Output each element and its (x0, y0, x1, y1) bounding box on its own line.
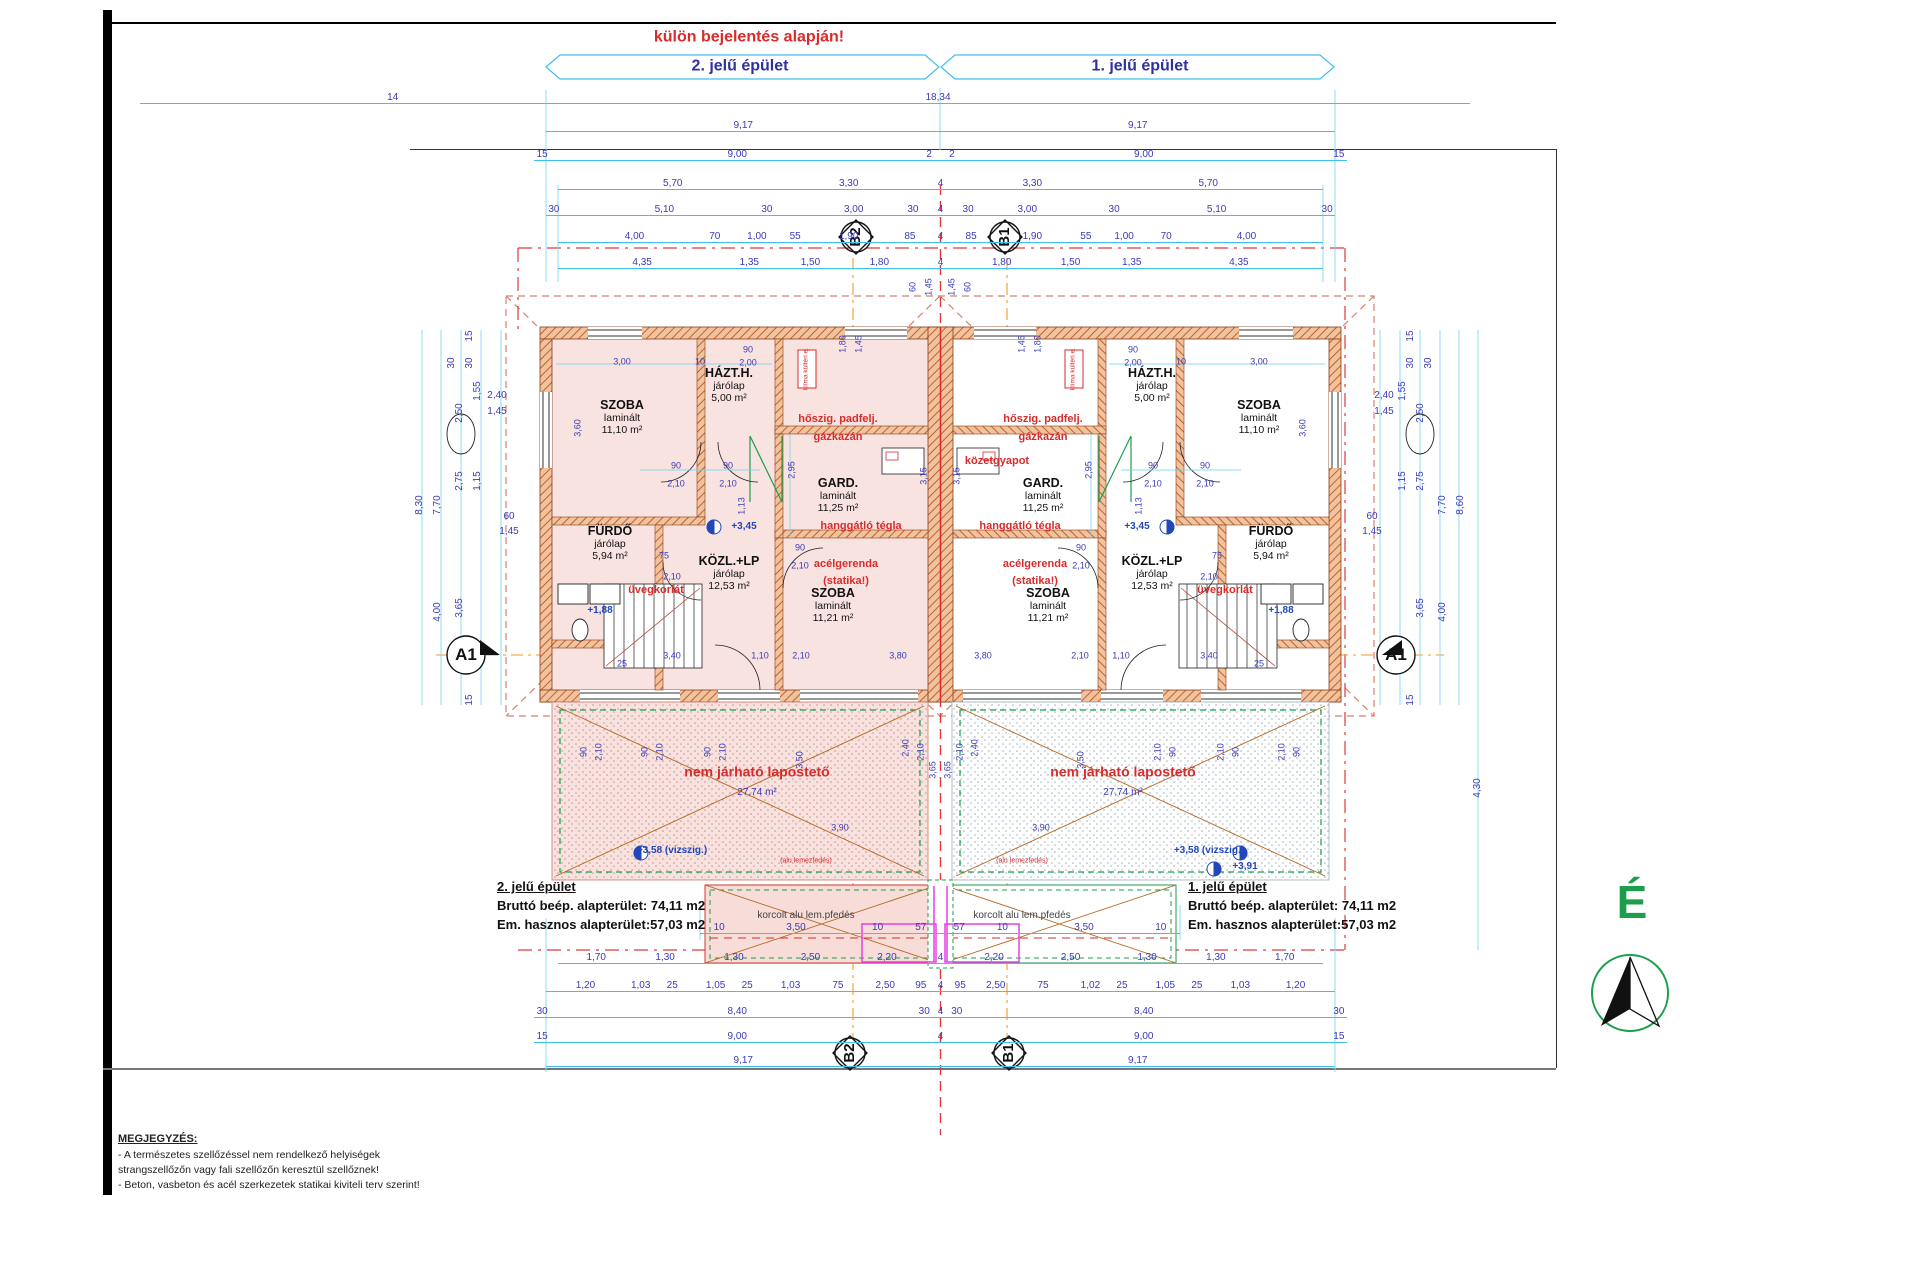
dim-label: 1,03 (781, 981, 800, 992)
dimension-row-10: 308,40304308,4030 (534, 1017, 1347, 1018)
room-nm: SZOBA (1026, 586, 1070, 600)
room-nm: SZOBA (600, 398, 644, 412)
v-dim-label: 60 (1366, 512, 1377, 523)
interior-dim-label: 90 (1231, 747, 1240, 757)
interior-dim-label: 90 (640, 747, 649, 757)
room-label-8: GARD.laminált11,25 m² (1023, 476, 1064, 514)
interior-dim-label: 1,13 (1134, 497, 1143, 515)
interior-dim-label: 3,90 (1032, 823, 1050, 832)
dim-label: 1,35 (1122, 258, 1141, 269)
dim-label: 2 (926, 150, 932, 161)
room-ar: 11,21 m² (811, 612, 855, 624)
dim-label: 9,00 (1134, 150, 1153, 161)
interior-dim-label: 2,40 (901, 739, 910, 757)
dimension-row-0: 1418,34 (140, 103, 1470, 104)
interior-dim-label: 90 (1148, 461, 1158, 470)
room-label-2: GARD.laminált11,25 m² (818, 476, 859, 514)
dim-label: 1,80 (992, 258, 1011, 269)
room-fin: laminált (811, 600, 855, 612)
dim-label: 9,00 (1134, 1032, 1153, 1043)
room-nm: HÁZT.H. (1128, 366, 1176, 380)
level-label: +3,58 (vizszig.) (1174, 846, 1244, 857)
v-dim-label: 2,40 (487, 391, 506, 402)
interior-dim-label: 1,80 (838, 335, 847, 353)
level-label: +3,58 (vizszig.) (637, 846, 707, 857)
v-dim-label: 1,55 (473, 381, 484, 400)
room-label-0: SZOBAlaminált11,10 m² (600, 398, 644, 436)
room-fin: laminált (1023, 490, 1064, 502)
interior-dim-label: 75 (1212, 551, 1222, 560)
room-ar: 11,25 m² (818, 502, 859, 514)
room-ar: 11,25 m² (1023, 502, 1064, 514)
dimension-row-3: 5,703,3043,305,70 (558, 189, 1323, 190)
red-annotation: hőszig. padfelj. (1003, 414, 1082, 426)
dim-label: 2,50 (876, 981, 895, 992)
interior-dim-label: 10 (695, 357, 705, 366)
interior-dim-label: 90 (1076, 543, 1086, 552)
interior-dim-label: 25 (1254, 659, 1264, 668)
room-fin: laminált (600, 412, 644, 424)
interior-dim-label: 2,10 (1071, 651, 1089, 660)
level-label: +1,88 (1268, 606, 1293, 617)
interior-dim-label: 2,10 (916, 743, 925, 761)
interior-dim-label: 90 (1168, 747, 1177, 757)
interior-dim-label: 2,10 (594, 743, 603, 761)
red-annotation: hanggátló tégla (979, 521, 1060, 533)
v-dim-label: 1,45 (1362, 527, 1381, 538)
red-annotation: hőszig. padfelj. (798, 414, 877, 426)
room-nm: FÜRDŐ (1249, 524, 1293, 538)
dim-label: 75 (1038, 981, 1049, 992)
dim-label: 5,10 (655, 205, 674, 216)
dim-label: 70 (709, 232, 720, 243)
v-dim-label: 1,45 (499, 527, 518, 538)
dim-label: 3,00 (1018, 205, 1037, 216)
interior-dim-label: 2,10 (955, 743, 964, 761)
interior-dim-label: 2,10 (655, 743, 664, 761)
room-label-4: KÖZL.+LPjárólap12,53 m² (699, 554, 760, 592)
level-label: +3,45 (731, 522, 756, 533)
dimension-row-12: 9,179,17 (546, 1066, 1335, 1067)
dim-label: 2,50 (986, 981, 1005, 992)
dim-label: 1,02 (1081, 981, 1100, 992)
interior-dim-label: 3,60 (573, 419, 582, 437)
interior-dim-label: 3,15 (919, 467, 928, 485)
interior-dim-label: 3,60 (1298, 419, 1307, 437)
dim-label: 4,35 (632, 258, 651, 269)
interior-dim-label: 2,10 (1200, 572, 1218, 581)
dim-label: 10 (1155, 923, 1166, 934)
dim-label: 9,17 (734, 1056, 753, 1067)
dim-label: 55 (1080, 232, 1091, 243)
dim-label: 1,00 (1114, 232, 1133, 243)
v-dim-label: 1,15 (1398, 471, 1409, 490)
dim-label: 70 (1161, 232, 1172, 243)
red-annotation: üvegkorlát (1197, 585, 1253, 597)
room-ar: 5,94 m² (1249, 550, 1293, 562)
room-label-7: HÁZT.H.járólap5,00 m² (1128, 366, 1176, 404)
interior-dim-label: 90 (703, 747, 712, 757)
interior-dim-label: 3,00 (613, 357, 631, 366)
room-label-9: FÜRDŐjárólap5,94 m² (1249, 524, 1293, 562)
room-nm: FÜRDŐ (588, 524, 632, 538)
room-fin: járólap (1249, 538, 1293, 550)
interior-dim-label: 90 (671, 461, 681, 470)
interior-dim-label: 3,50 (1076, 751, 1085, 769)
dim-label: 4 (938, 953, 944, 964)
dim-label: 15 (537, 1032, 548, 1043)
dim-label: 3,50 (1074, 923, 1093, 934)
dim-label: 1,90 (839, 232, 858, 243)
dim-label: 2,20 (984, 953, 1003, 964)
dim-label: 1,03 (1231, 981, 1250, 992)
v-dim-label: 60 (503, 512, 514, 523)
v-dim-label: 2,75 (455, 471, 466, 490)
room-ar: 12,53 m² (699, 580, 760, 592)
interior-dim-label: 3,00 (1250, 357, 1268, 366)
dim-label: 30 (761, 205, 772, 216)
interior-dim-label: 90 (795, 543, 805, 552)
red-annotation: gázkazán (814, 432, 863, 444)
room-label-6: SZOBAlaminált11,10 m² (1237, 398, 1281, 436)
dim-label: 4 (938, 179, 944, 190)
dim-label: 95 (955, 981, 966, 992)
room-fin: laminált (1026, 600, 1070, 612)
interior-dim-label: 3,90 (831, 823, 849, 832)
interior-dim-label: 2,10 (1216, 743, 1225, 761)
dim-label: 1,30 (724, 953, 743, 964)
dim-label: 25 (667, 981, 678, 992)
interior-dim-label: 75 (659, 551, 669, 560)
dim-label: 57 (915, 923, 926, 934)
dimension-row-9: 1,201,03251,05251,03752,50954952,50751,0… (546, 991, 1335, 992)
dim-label: 4 (938, 1032, 944, 1043)
dim-label: 30 (907, 205, 918, 216)
v-dim-label: 2,50 (1416, 403, 1427, 422)
room-nm: HÁZT.H. (705, 366, 753, 380)
dim-label: 95 (915, 981, 926, 992)
interior-dim-label: 1,45 (924, 278, 933, 296)
dim-label: 3,00 (844, 205, 863, 216)
dim-label: 9,00 (728, 150, 747, 161)
level-label: +1,88 (587, 606, 612, 617)
dim-label: 2,50 (1061, 953, 1080, 964)
dim-label: 30 (1109, 205, 1120, 216)
v-dim-label: 1,45 (487, 407, 506, 418)
v-dim-label: 8,60 (1456, 495, 1467, 514)
interior-dim-label: 2,10 (663, 572, 681, 581)
v-dim-label: 15 (465, 694, 476, 705)
dim-label: 14 (387, 93, 398, 104)
interior-dim-label: 3,15 (952, 467, 961, 485)
interior-dim-label: 90 (1200, 461, 1210, 470)
interior-dim-label: 1,80 (1033, 335, 1042, 353)
v-dim-label: 30 (1424, 357, 1435, 368)
dimension-row-11: 159,0049,0015 (534, 1042, 1347, 1043)
interior-dim-label: 3,40 (663, 651, 681, 660)
dim-label: 1,05 (706, 981, 725, 992)
dimension-row-5: 4,00701,00551,90854851,90551,00704,00 (558, 242, 1323, 243)
dim-label: 25 (1191, 981, 1202, 992)
dim-label: 9,17 (734, 121, 753, 132)
dim-label: 15 (537, 150, 548, 161)
dim-label: 8,40 (728, 1007, 747, 1018)
floor-plan-page: { "title_note": "külön bejelentés alapjá… (0, 0, 1920, 1280)
room-ar: 5,00 m² (705, 392, 753, 404)
dim-label: 1,30 (1137, 953, 1156, 964)
v-dim-label: 4,00 (1438, 602, 1449, 621)
room-ar: 5,94 m² (588, 550, 632, 562)
dim-label: 2,20 (877, 953, 896, 964)
room-nm: KÖZL.+LP (699, 554, 760, 568)
interior-dim-label: 3,65 (928, 761, 937, 779)
interior-dim-label: 3,50 (795, 751, 804, 769)
dim-label: 1,30 (655, 953, 674, 964)
dim-label: 5,10 (1207, 205, 1226, 216)
room-label-5: SZOBAlaminált11,21 m² (811, 586, 855, 624)
interior-dim-label: 1,45 (947, 278, 956, 296)
v-dim-label: 2,50 (455, 403, 466, 422)
interior-dim-label: 1,13 (737, 497, 746, 515)
dim-label: 4 (938, 1007, 944, 1018)
dim-label: 1,35 (740, 258, 759, 269)
dim-label: 15 (1333, 1032, 1344, 1043)
red-annotation: acélgerenda (1003, 559, 1067, 571)
interior-dim-label: 2,10 (1153, 743, 1162, 761)
dim-label: 1,30 (1206, 953, 1225, 964)
dimension-row-4: 305,10303,00304303,00305,1030 (546, 215, 1335, 216)
room-fin: járólap (588, 538, 632, 550)
dim-label: 75 (832, 981, 843, 992)
interior-dim-label: 3,65 (943, 761, 952, 779)
dim-label: 2 (949, 150, 955, 161)
v-dim-label: 15 (465, 330, 476, 341)
dimension-row-2: 159,00229,0015 (534, 160, 1347, 161)
v-dim-label: 3,65 (455, 598, 466, 617)
interior-dim-label: 1,10 (1112, 651, 1130, 660)
room-label-11: SZOBAlaminált11,21 m² (1026, 586, 1070, 624)
dim-label: 85 (904, 232, 915, 243)
room-ar: 11,10 m² (600, 424, 644, 436)
red-annotation: gázkazán (1019, 432, 1068, 444)
dim-label: 3,30 (839, 179, 858, 190)
interior-dim-label: 90 (1292, 747, 1301, 757)
level-label: +3,91 (1232, 862, 1257, 873)
dimension-row-7: 103,50105757103,5010 (700, 933, 1180, 934)
dim-label: 4,00 (625, 232, 644, 243)
interior-dim-label: 2,10 (1072, 561, 1090, 570)
interior-dim-label: 2,95 (787, 461, 796, 479)
room-nm: SZOBA (811, 586, 855, 600)
interior-dim-label: 2,10 (1144, 479, 1162, 488)
interior-dim-label: 90 (1128, 345, 1138, 354)
room-fin: laminált (1237, 412, 1281, 424)
dim-label: 8,40 (1134, 1007, 1153, 1018)
dim-label: 25 (1116, 981, 1127, 992)
dim-label: 9,17 (1128, 1056, 1147, 1067)
dim-label: 30 (548, 205, 559, 216)
interior-dim-label: 3,80 (889, 651, 907, 660)
room-nm: SZOBA (1237, 398, 1281, 412)
dim-label: 5,70 (1199, 179, 1218, 190)
interior-dim-label: 90 (723, 461, 733, 470)
interior-dim-label: 3,80 (974, 651, 992, 660)
interior-dim-label: 2,40 (970, 739, 979, 757)
dim-label: 4 (938, 205, 944, 216)
dim-label: 30 (963, 205, 974, 216)
room-nm: GARD. (1023, 476, 1064, 490)
dim-label: 30 (1322, 205, 1333, 216)
interior-dim-label: 90 (743, 345, 753, 354)
dim-label: 30 (919, 1007, 930, 1018)
dim-label: 3,50 (786, 923, 805, 934)
interior-dim-label: 1,45 (1017, 335, 1026, 353)
dim-label: 3,30 (1023, 179, 1042, 190)
dim-label: 4 (938, 232, 944, 243)
room-fin: járólap (699, 568, 760, 580)
dim-label: 1,70 (1275, 953, 1294, 964)
v-dim-label: 2,75 (1416, 471, 1427, 490)
dim-label: 1,90 (1023, 232, 1042, 243)
dim-label: 30 (1333, 1007, 1344, 1018)
v-dim-label: 7,70 (433, 495, 444, 514)
dim-label: 1,05 (1156, 981, 1175, 992)
dim-label: 1,03 (631, 981, 650, 992)
red-annotation: hanggátló tégla (820, 521, 901, 533)
red-annotation: acélgerenda (814, 559, 878, 571)
dim-label: 9,17 (1128, 121, 1147, 132)
room-ar: 12,53 m² (1122, 580, 1183, 592)
room-ar: 5,00 m² (1128, 392, 1176, 404)
dim-label: 4,35 (1229, 258, 1248, 269)
v-dim-label: 7,70 (1438, 495, 1449, 514)
interior-dim-label: 2,10 (791, 561, 809, 570)
v-dim-label: 30 (1406, 357, 1417, 368)
interior-dim-label: 60 (908, 282, 917, 292)
v-dim-label: 1,55 (1398, 381, 1409, 400)
red-annotation: üvegkorlát (628, 585, 684, 597)
v-dim-label: 4,00 (433, 602, 444, 621)
v-dim-label: 1,15 (473, 471, 484, 490)
dim-label: 30 (537, 1007, 548, 1018)
interior-dim-label: 90 (579, 747, 588, 757)
dim-label: 10 (714, 923, 725, 934)
dim-label: 85 (966, 232, 977, 243)
dim-label: 1,20 (1286, 981, 1305, 992)
dim-label: 5,70 (663, 179, 682, 190)
red-annotation: közetgyapot (965, 456, 1029, 468)
dimension-row-6: 4,351,351,501,8041,801,501,354,35 (558, 268, 1323, 269)
interior-dim-label: 2,10 (667, 479, 685, 488)
dim-label: 57 (954, 923, 965, 934)
dim-label: 30 (951, 1007, 962, 1018)
interior-dim-label: 2,10 (1277, 743, 1286, 761)
dim-label: 4,00 (1237, 232, 1256, 243)
dim-label: 10 (872, 923, 883, 934)
interior-dim-label: 25 (617, 659, 627, 668)
room-fin: járólap (1128, 380, 1176, 392)
v-dim-label: 15 (1406, 330, 1417, 341)
dim-label: 55 (790, 232, 801, 243)
room-label-3: FÜRDŐjárólap5,94 m² (588, 524, 632, 562)
room-nm: GARD. (818, 476, 859, 490)
level-label: +3,45 (1124, 522, 1149, 533)
dim-label: 2,50 (801, 953, 820, 964)
dim-label: 1,70 (587, 953, 606, 964)
room-fin: laminált (818, 490, 859, 502)
room-ar: 11,21 m² (1026, 612, 1070, 624)
interior-dim-label: 2,10 (719, 479, 737, 488)
interior-dim-label: 2,10 (792, 651, 810, 660)
room-label-10: KÖZL.+LPjárólap12,53 m² (1122, 554, 1183, 592)
v-dim-label: 30 (447, 357, 458, 368)
interior-dim-label: 60 (963, 282, 972, 292)
room-label-1: HÁZT.H.járólap5,00 m² (705, 366, 753, 404)
dim-label: 25 (742, 981, 753, 992)
v-dim-label: 4,30 (1473, 778, 1484, 797)
dim-label: 1,80 (870, 258, 889, 269)
dim-label: 1,20 (576, 981, 595, 992)
dim-label: 10 (997, 923, 1008, 934)
dim-label: 1,50 (801, 258, 820, 269)
v-dim-label: 2,40 (1374, 391, 1393, 402)
dim-label: 4 (938, 258, 944, 269)
interior-dim-label: 1,10 (751, 651, 769, 660)
room-ar: 11,10 m² (1237, 424, 1281, 436)
dim-label: 1,50 (1061, 258, 1080, 269)
dim-label: 1,00 (747, 232, 766, 243)
interior-dim-label: 2,95 (1084, 461, 1093, 479)
interior-dim-label: 10 (1176, 357, 1186, 366)
dim-label: 18,34 (925, 93, 950, 104)
dim-label: 15 (1333, 150, 1344, 161)
v-dim-label: 8,30 (415, 495, 426, 514)
annotation-layer: 1418,349,179,17159,00229,00155,703,3043,… (0, 0, 1920, 1280)
interior-dim-label: 3,40 (1200, 651, 1218, 660)
room-fin: járólap (705, 380, 753, 392)
room-fin: járólap (1122, 568, 1183, 580)
v-dim-label: 15 (1406, 694, 1417, 705)
v-dim-label: 1,45 (1374, 407, 1393, 418)
v-dim-label: 30 (465, 357, 476, 368)
interior-dim-label: 2,10 (1196, 479, 1214, 488)
room-nm: KÖZL.+LP (1122, 554, 1183, 568)
interior-dim-label: 2,10 (718, 743, 727, 761)
dimension-row-8: 1,701,301,302,502,2042,202,501,301,301,7… (558, 963, 1323, 964)
interior-dim-label: 1,45 (854, 335, 863, 353)
dim-label: 4 (938, 981, 944, 992)
dim-label: 9,00 (728, 1032, 747, 1043)
dimension-row-1: 9,179,17 (546, 131, 1335, 132)
v-dim-label: 3,65 (1416, 598, 1427, 617)
